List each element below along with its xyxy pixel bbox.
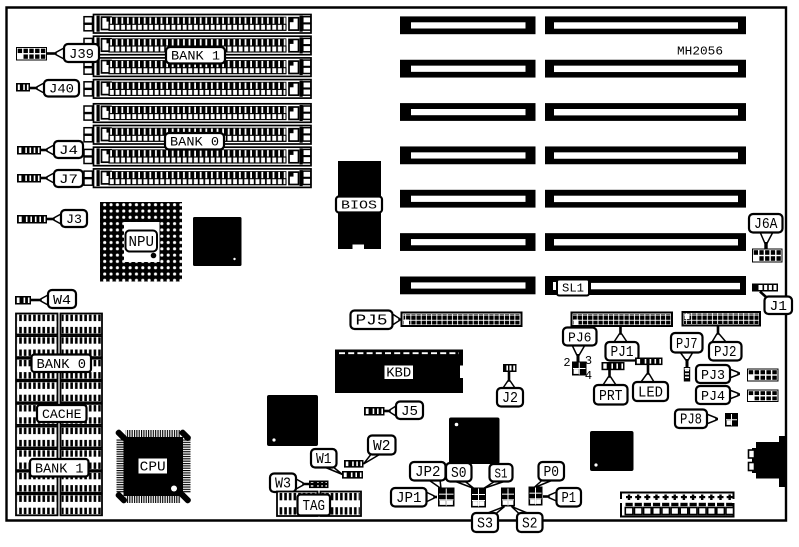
svg-text:J7: J7 xyxy=(59,172,78,187)
svg-text:BANK 1: BANK 1 xyxy=(35,462,84,477)
svg-text:NPU: NPU xyxy=(129,234,155,251)
svg-text:SL1: SL1 xyxy=(562,282,584,296)
svg-text:S2: S2 xyxy=(522,516,538,533)
svg-text:PJ7: PJ7 xyxy=(676,336,698,353)
svg-text:BIOS: BIOS xyxy=(341,199,377,213)
svg-text:PJ3: PJ3 xyxy=(701,368,725,384)
svg-text:JP2: JP2 xyxy=(415,465,441,481)
svg-text:W4: W4 xyxy=(53,293,71,309)
svg-text:J2: J2 xyxy=(502,391,518,407)
svg-text:JP1: JP1 xyxy=(396,491,422,507)
svg-text:BANK 0: BANK 0 xyxy=(37,358,87,373)
svg-text:W2: W2 xyxy=(373,438,391,455)
svg-text:LED: LED xyxy=(638,385,663,402)
svg-text:J3: J3 xyxy=(66,212,82,227)
svg-text:MH2056: MH2056 xyxy=(677,45,723,59)
svg-text:CACHE: CACHE xyxy=(42,407,82,422)
svg-text:J5: J5 xyxy=(401,405,418,420)
svg-text:J6A: J6A xyxy=(754,217,778,233)
svg-text:S3: S3 xyxy=(477,516,493,533)
svg-text:J39: J39 xyxy=(69,47,94,63)
svg-text:J1: J1 xyxy=(770,300,788,315)
svg-text:J4: J4 xyxy=(59,143,78,158)
svg-text:KBD: KBD xyxy=(386,366,411,382)
svg-text:2: 2 xyxy=(563,356,570,370)
svg-text:PJ6: PJ6 xyxy=(568,330,592,346)
svg-text:PJ8: PJ8 xyxy=(680,413,702,429)
svg-text:BANK 0: BANK 0 xyxy=(170,136,219,150)
svg-text:BANK 1: BANK 1 xyxy=(171,50,220,64)
svg-text:W1: W1 xyxy=(316,452,332,468)
svg-text:PRT: PRT xyxy=(599,388,623,405)
svg-text:PJ5: PJ5 xyxy=(356,314,388,330)
svg-text:P0: P0 xyxy=(544,465,560,481)
svg-text:TAG: TAG xyxy=(303,498,326,515)
svg-text:CPU: CPU xyxy=(140,460,166,476)
svg-text:PJ4: PJ4 xyxy=(701,389,725,405)
svg-text:J40: J40 xyxy=(49,83,74,97)
svg-text:S0: S0 xyxy=(451,466,467,482)
svg-text:P1: P1 xyxy=(562,491,577,507)
svg-text:PJ2: PJ2 xyxy=(714,345,737,361)
svg-text:S1: S1 xyxy=(495,467,508,482)
svg-text:W3: W3 xyxy=(275,477,291,493)
svg-text:PJ1: PJ1 xyxy=(611,345,634,361)
